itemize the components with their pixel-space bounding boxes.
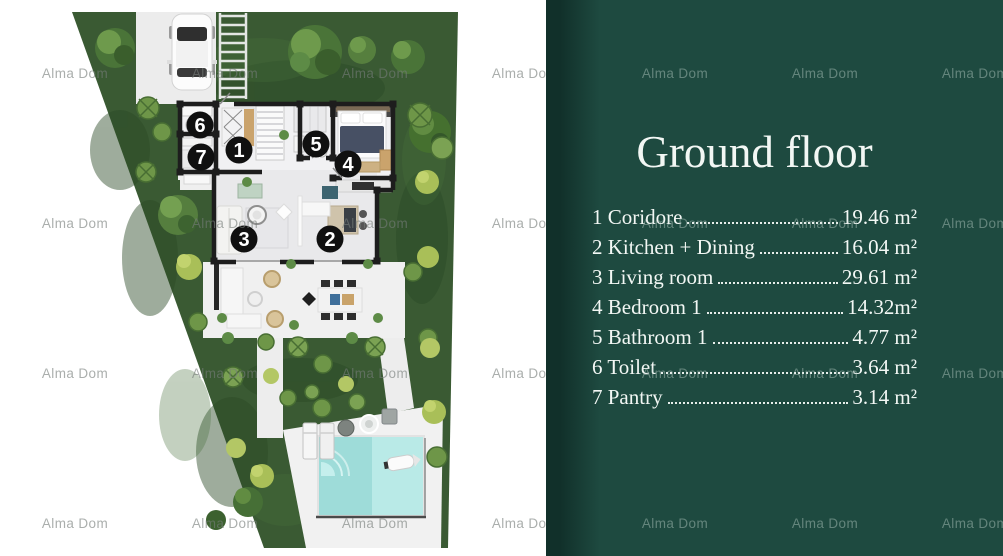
watermark: Alma Dom [915, 366, 1003, 381]
svg-text:7: 7 [195, 147, 206, 169]
room-marker-1: 1 [226, 137, 253, 164]
legend-row-6: 6 Toilet 3.64 m² [592, 352, 917, 382]
legend-room-name: 4 Bedroom 1 [592, 292, 705, 322]
room-marker-3: 3 [231, 226, 258, 253]
dot-leader [687, 222, 837, 224]
room-marker-2: 2 [317, 226, 344, 253]
panel-content: Ground floor 1 Coridore 19.46 m²2 Kitche… [592, 128, 917, 412]
legend-room-area: 19.46 m² [840, 202, 917, 232]
page-title: Ground floor [592, 128, 917, 178]
legend-room-area: 29.61 m² [840, 262, 917, 292]
legend-row-3: 3 Living room 29.61 m² [592, 262, 917, 292]
flyer-page: 1234567 Alma DomAlma DomAlma DomAlma Dom… [0, 0, 1003, 556]
floor-plan-figure: 1234567 [0, 0, 546, 556]
legend-row-4: 4 Bedroom 1 14.32m² [592, 292, 917, 322]
legend-room-name: 6 Toilet [592, 352, 659, 382]
dot-leader [707, 312, 843, 314]
legend-room-name: 7 Pantry [592, 382, 666, 412]
dot-leader [713, 342, 849, 344]
legend-room-name: 1 Coridore [592, 202, 685, 232]
svg-text:1: 1 [233, 140, 244, 162]
info-panel: Ground floor 1 Coridore 19.46 m²2 Kitche… [546, 0, 1003, 556]
legend-room-area: 3.64 m² [850, 352, 917, 382]
svg-text:3: 3 [238, 229, 249, 251]
legend-room-area: 16.04 m² [840, 232, 917, 262]
watermark: Alma Dom [765, 66, 885, 81]
svg-text:4: 4 [342, 154, 354, 176]
watermark: Alma Dom [915, 216, 1003, 231]
legend-room-name: 5 Bathroom 1 [592, 322, 711, 352]
watermark: Alma Dom [765, 516, 885, 531]
dot-leader [668, 402, 849, 404]
watermark: Alma Dom [615, 66, 735, 81]
legend-room-name: 3 Living room [592, 262, 716, 292]
legend-room-area: 4.77 m² [850, 322, 917, 352]
legend-row-7: 7 Pantry 3.14 m² [592, 382, 917, 412]
legend-room-name: 2 Kitchen + Dining [592, 232, 758, 262]
dot-leader [661, 372, 848, 374]
legend-row-1: 1 Coridore 19.46 m² [592, 202, 917, 232]
site-plan: 1234567 Alma DomAlma DomAlma DomAlma Dom… [0, 0, 546, 556]
dot-leader [718, 282, 838, 284]
dot-leader [760, 252, 838, 254]
room-marker-4: 4 [335, 151, 362, 178]
legend-room-area: 14.32m² [845, 292, 917, 322]
legend-row-5: 5 Bathroom 1 4.77 m² [592, 322, 917, 352]
room-marker-7: 7 [188, 144, 215, 171]
watermark: Alma Dom [615, 516, 735, 531]
svg-text:2: 2 [324, 229, 335, 251]
legend-row-2: 2 Kitchen + Dining 16.04 m² [592, 232, 917, 262]
room-marker-5: 5 [303, 131, 330, 158]
path-left [257, 338, 283, 438]
svg-text:6: 6 [194, 115, 205, 137]
watermark: Alma Dom [915, 66, 1003, 81]
legend-room-area: 3.14 m² [850, 382, 917, 412]
room-legend-list: 1 Coridore 19.46 m²2 Kitchen + Dining 16… [592, 202, 917, 412]
watermark: Alma Dom [915, 516, 1003, 531]
svg-text:5: 5 [310, 134, 321, 156]
room-marker-6: 6 [187, 112, 214, 139]
car-icon [167, 14, 217, 90]
